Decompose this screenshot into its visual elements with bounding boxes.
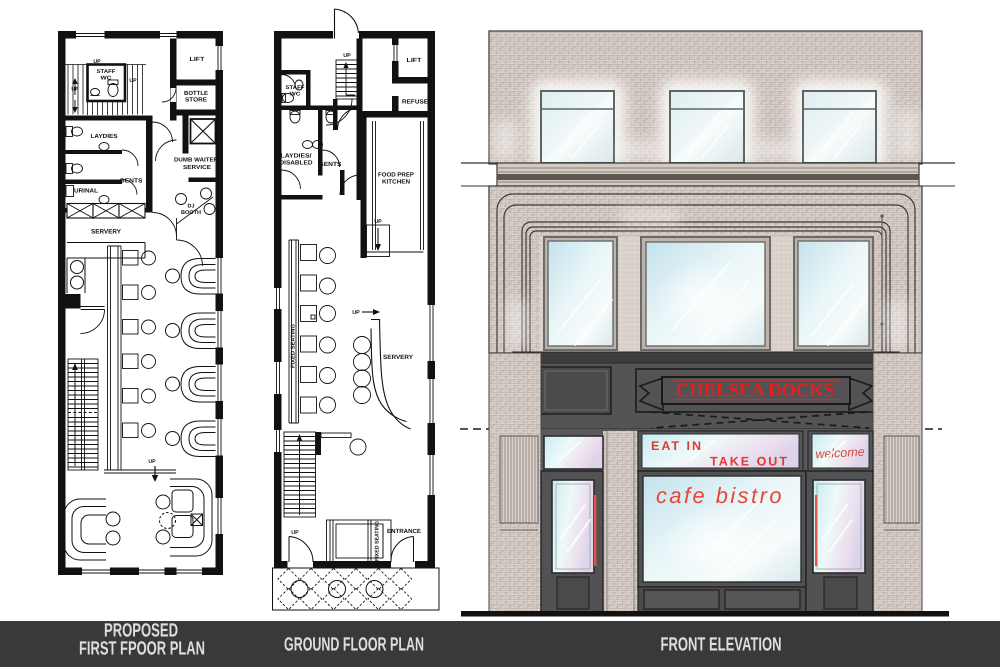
svg-text:DUMB WAITER: DUMB WAITER bbox=[174, 158, 219, 164]
svg-text:WC: WC bbox=[290, 92, 301, 98]
svg-text:UP: UP bbox=[343, 53, 351, 59]
svg-text:STORE: STORE bbox=[185, 97, 207, 104]
svg-text:TAKE OUT: TAKE OUT bbox=[710, 455, 789, 469]
svg-text:FIXED SEATING: FIXED SEATING bbox=[375, 521, 381, 561]
svg-text:UP: UP bbox=[148, 459, 156, 465]
svg-text:FIXED SEATING: FIXED SEATING bbox=[291, 324, 297, 368]
svg-text:UP: UP bbox=[352, 310, 360, 316]
svg-text:KITCHEN: KITCHEN bbox=[382, 179, 410, 186]
svg-text:FIRST FPOOR PLAN: FIRST FPOOR PLAN bbox=[79, 639, 205, 660]
svg-text:FOOD PREP: FOOD PREP bbox=[378, 172, 414, 179]
svg-text:LIFT: LIFT bbox=[407, 57, 422, 64]
svg-text:cafe bistro: cafe bistro bbox=[656, 483, 784, 508]
svg-text:SERVERY: SERVERY bbox=[91, 229, 122, 236]
svg-text:GENTS: GENTS bbox=[319, 161, 342, 168]
svg-text:UP: UP bbox=[71, 87, 79, 93]
svg-text:LAYDIES: LAYDIES bbox=[91, 133, 118, 140]
svg-text:SERVERY: SERVERY bbox=[383, 354, 414, 361]
svg-text:LIFT: LIFT bbox=[190, 56, 205, 63]
svg-text:EAT IN: EAT IN bbox=[651, 439, 703, 453]
svg-text:URINAL: URINAL bbox=[74, 188, 98, 195]
svg-text:UP: UP bbox=[129, 78, 137, 84]
svg-text:UP: UP bbox=[374, 219, 382, 225]
svg-text:UP: UP bbox=[291, 530, 299, 536]
svg-text:STAFF: STAFF bbox=[97, 69, 117, 75]
svg-text:BOTTLE: BOTTLE bbox=[184, 90, 208, 97]
svg-text:UP: UP bbox=[93, 59, 101, 65]
svg-text:ENTRANCE: ENTRANCE bbox=[387, 528, 421, 535]
svg-text:REFUSE: REFUSE bbox=[402, 99, 428, 106]
svg-text:STAFF: STAFF bbox=[286, 85, 306, 91]
svg-text:DISABLED: DISABLED bbox=[280, 160, 314, 167]
svg-text:LAYDIES/: LAYDIES/ bbox=[281, 153, 312, 160]
svg-text:WC: WC bbox=[101, 76, 112, 82]
svg-text:CHELSEA DOCKS: CHELSEA DOCKS bbox=[676, 381, 834, 401]
svg-text:SERVICE: SERVICE bbox=[183, 164, 211, 171]
svg-text:GROUND FLOOR PLAN: GROUND FLOOR PLAN bbox=[284, 635, 424, 656]
svg-text:DJ: DJ bbox=[188, 204, 195, 210]
svg-text:GENTS: GENTS bbox=[120, 178, 143, 185]
svg-text:FRONT ELEVATION: FRONT ELEVATION bbox=[661, 635, 782, 656]
svg-text:BOOTH: BOOTH bbox=[181, 210, 201, 216]
